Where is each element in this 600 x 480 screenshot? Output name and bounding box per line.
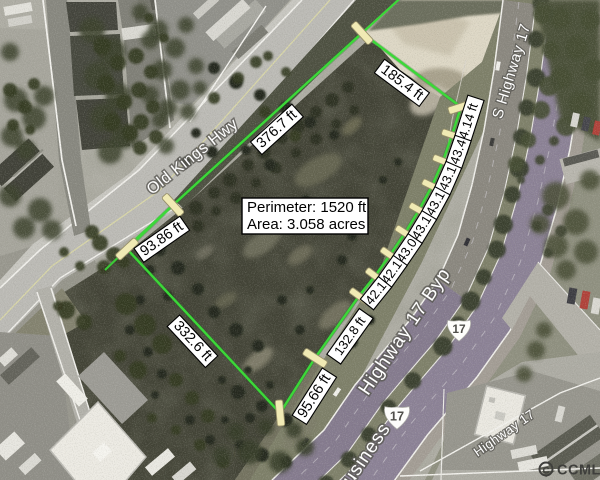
- svg-text:17: 17: [452, 322, 466, 336]
- svg-text:C: C: [543, 466, 550, 477]
- svg-text:17: 17: [390, 409, 404, 424]
- svg-text:CCML: CCML: [557, 463, 600, 479]
- svg-text:Perimeter: 1520 ft: Perimeter: 1520 ft: [247, 199, 367, 216]
- svg-text:Area: 3.058 acres: Area: 3.058 acres: [247, 216, 365, 233]
